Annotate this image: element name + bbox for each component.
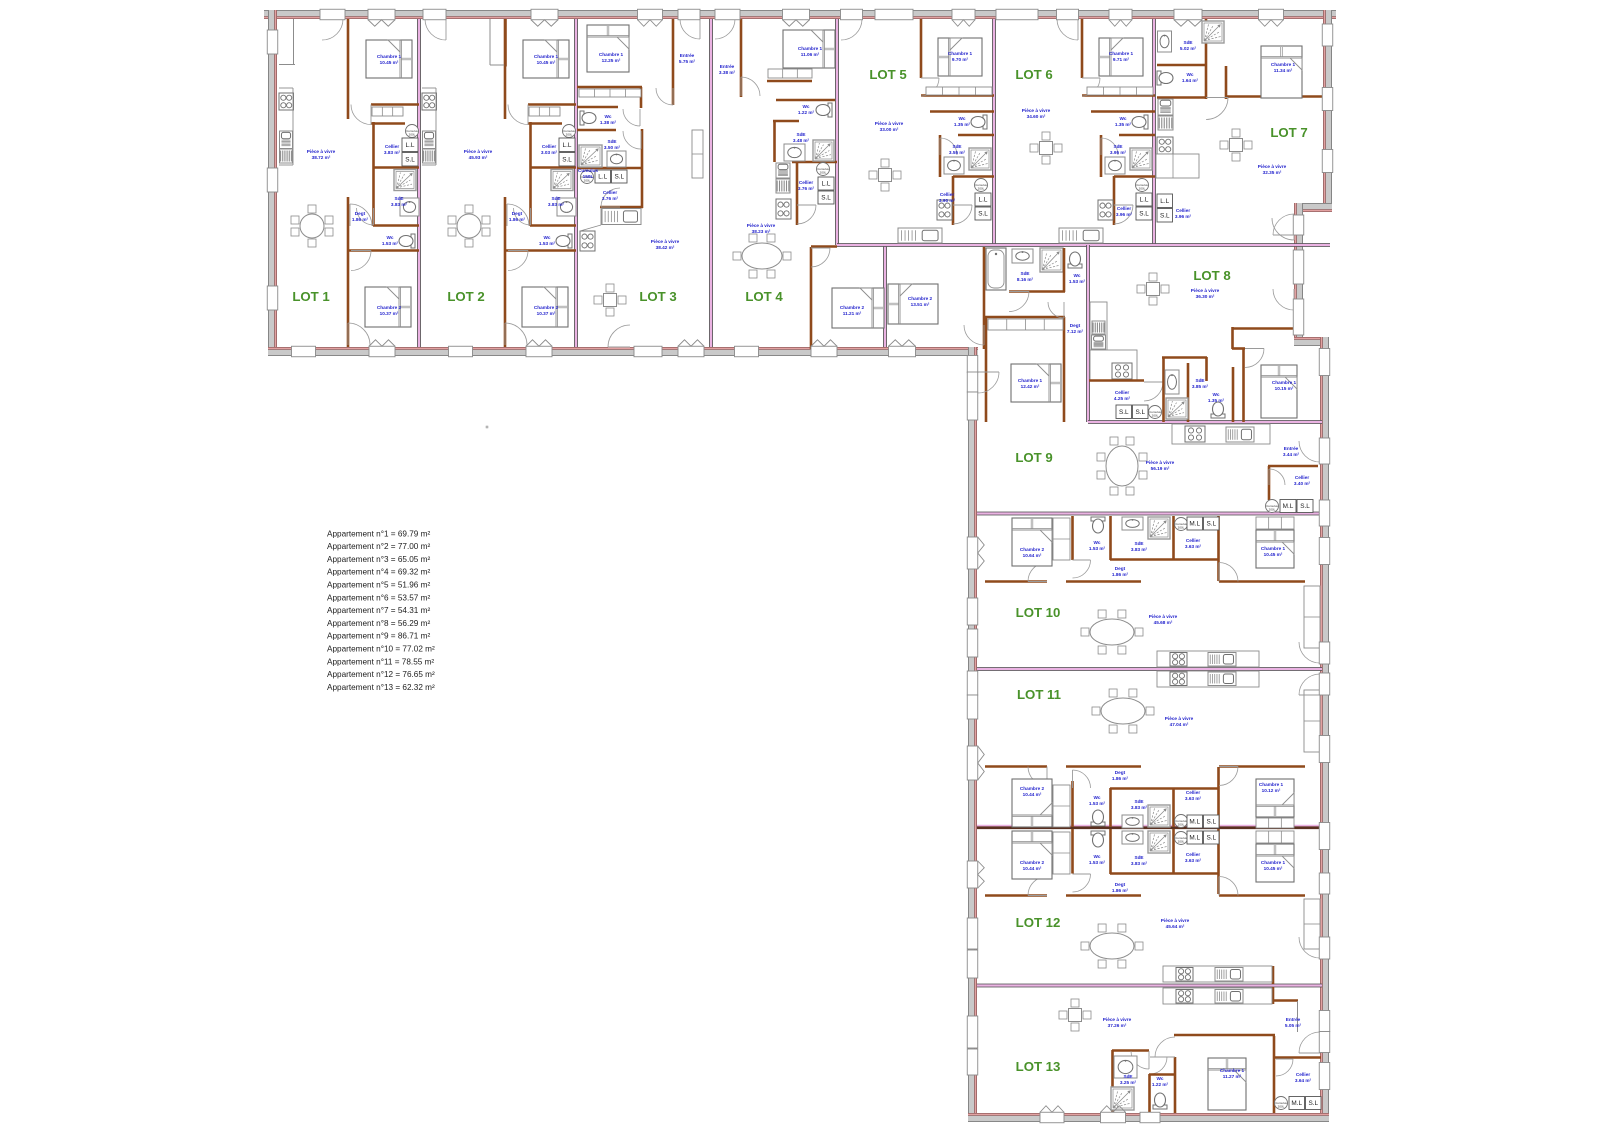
svg-text:1.86 m²: 1.86 m² [509, 217, 526, 222]
svg-text:11.34 m²: 11.34 m² [1274, 68, 1293, 73]
svg-text:S.L: S.L [1119, 409, 1129, 416]
svg-text:Degt: Degt [512, 211, 523, 216]
svg-text:Cellier: Cellier [1186, 538, 1201, 543]
svg-text:Chambre 1: Chambre 1 [377, 54, 402, 59]
svg-text:Wc: Wc [1093, 795, 1100, 800]
svg-text:Pièce à vivre: Pièce à vivre [1103, 1017, 1132, 1022]
svg-text:200L: 200L [1269, 507, 1276, 511]
svg-text:S.L: S.L [1206, 521, 1216, 528]
svg-text:3.44 m²: 3.44 m² [1283, 452, 1300, 457]
svg-text:11.21 m²: 11.21 m² [843, 311, 862, 316]
svg-text:M.L: M.L [1189, 819, 1200, 826]
svg-text:SdE: SdE [1134, 541, 1143, 546]
svg-text:Chambre 2: Chambre 2 [1020, 547, 1045, 552]
svg-text:Appartement n°10 = 77.02 m²: Appartement n°10 = 77.02 m² [327, 645, 435, 654]
svg-text:Cellier: Cellier [1176, 208, 1191, 213]
svg-text:3.50 m²: 3.50 m² [604, 145, 621, 150]
svg-text:1.35 m²: 1.35 m² [1208, 398, 1225, 403]
svg-text:Appartement n°8 = 56.29 m²: Appartement n°8 = 56.29 m² [327, 619, 430, 628]
svg-text:Wc: Wc [1212, 392, 1219, 397]
svg-text:S.L: S.L [614, 174, 624, 181]
svg-text:1.53 m²: 1.53 m² [1069, 279, 1086, 284]
svg-text:5.05 m²: 5.05 m² [1285, 1023, 1302, 1028]
svg-text:Appartement n°1 = 69.79 m²: Appartement n°1 = 69.79 m² [327, 529, 430, 538]
svg-text:Cellier: Cellier [1186, 790, 1201, 795]
svg-text:45.68 m²: 45.68 m² [1154, 620, 1173, 625]
svg-text:200L: 200L [820, 170, 827, 174]
svg-text:Appartement n°5 = 51.96 m²: Appartement n°5 = 51.96 m² [327, 581, 430, 590]
svg-text:3.83 m²: 3.83 m² [1131, 805, 1148, 810]
svg-text:Pièce à vivre: Pièce à vivre [1258, 164, 1287, 169]
svg-text:200L: 200L [584, 178, 591, 182]
svg-text:200L: 200L [1278, 1104, 1285, 1108]
svg-text:Chambre 1: Chambre 1 [1272, 380, 1297, 385]
svg-text:Degt: Degt [1115, 770, 1126, 775]
svg-text:Chambre 1: Chambre 1 [1018, 378, 1043, 383]
svg-text:L.L: L.L [822, 181, 831, 188]
svg-text:Chambre 1: Chambre 1 [1109, 51, 1134, 56]
svg-text:Wc: Wc [543, 235, 550, 240]
svg-text:9.70 m²: 9.70 m² [952, 57, 969, 62]
svg-text:200L: 200L [1178, 525, 1185, 529]
svg-text:5.02 m²: 5.02 m² [1180, 46, 1197, 51]
svg-text:34.60 m²: 34.60 m² [1027, 114, 1046, 119]
svg-text:Degt: Degt [1070, 323, 1081, 328]
svg-text:1.38 m²: 1.38 m² [600, 120, 617, 125]
svg-text:SdE: SdE [1195, 378, 1204, 383]
svg-text:150L: 150L [583, 174, 594, 179]
svg-text:38.42 m²: 38.42 m² [656, 245, 675, 250]
svg-text:S.L: S.L [978, 211, 988, 218]
svg-text:1.86 m²: 1.86 m² [352, 217, 369, 222]
svg-text:Wc: Wc [1156, 1076, 1163, 1081]
svg-text:Wc: Wc [1093, 854, 1100, 859]
svg-text:3.90 m²: 3.90 m² [939, 198, 956, 203]
svg-text:Cellier: Cellier [799, 180, 814, 185]
svg-text:200L: 200L [1152, 413, 1159, 417]
svg-text:Cellier: Cellier [1117, 206, 1132, 211]
svg-text:Appartement n°9 = 86.71 m²: Appartement n°9 = 86.71 m² [327, 632, 430, 641]
svg-text:3.25 m²: 3.25 m² [1120, 1080, 1137, 1085]
svg-text:Pièce à vivre: Pièce à vivre [1161, 918, 1190, 923]
svg-text:S.L: S.L [1206, 819, 1216, 826]
svg-text:SdE: SdE [1134, 855, 1143, 860]
svg-text:Wc: Wc [802, 104, 809, 109]
svg-text:Chambre 1: Chambre 1 [1271, 62, 1296, 67]
svg-text:Pièce à vivre: Pièce à vivre [1022, 108, 1051, 113]
svg-text:Chambre 1: Chambre 1 [798, 46, 823, 51]
svg-text:1.53 m²: 1.53 m² [382, 241, 399, 246]
svg-text:1.64 m²: 1.64 m² [1182, 78, 1199, 83]
svg-text:Degt: Degt [355, 211, 366, 216]
svg-text:SdE: SdE [952, 144, 961, 149]
svg-text:SdE: SdE [1020, 271, 1029, 276]
svg-text:Chambre 2: Chambre 2 [1020, 786, 1045, 791]
svg-text:Wc: Wc [604, 114, 611, 119]
svg-text:3.63 m²: 3.63 m² [1185, 544, 1202, 549]
svg-text:12.25 m²: 12.25 m² [602, 58, 621, 63]
svg-text:Chambre 1: Chambre 1 [1261, 546, 1286, 551]
svg-text:Entrée: Entrée [1286, 1017, 1301, 1022]
svg-text:Appartement n°4 = 69.32 m²: Appartement n°4 = 69.32 m² [327, 568, 430, 577]
svg-text:3.83 m²: 3.83 m² [1131, 861, 1148, 866]
svg-text:3.76 m²: 3.76 m² [602, 196, 619, 201]
svg-text:33.00 m²: 33.00 m² [880, 127, 899, 132]
svg-text:10.12 m²: 10.12 m² [1262, 788, 1281, 793]
svg-text:LOT 9: LOT 9 [1015, 450, 1052, 465]
svg-text:M.L: M.L [1291, 1100, 1302, 1107]
svg-text:Pièce à vivre: Pièce à vivre [307, 149, 336, 154]
svg-text:Pièce à vivre: Pièce à vivre [464, 149, 493, 154]
svg-text:Degt: Degt [1115, 566, 1126, 571]
svg-text:S.L: S.L [1160, 212, 1170, 219]
svg-text:200L: 200L [1178, 839, 1185, 843]
svg-text:Appartement n°7 = 54.31 m²: Appartement n°7 = 54.31 m² [327, 606, 430, 615]
svg-text:Chambre 1: Chambre 1 [1259, 782, 1284, 787]
svg-text:Chambre 2: Chambre 2 [377, 305, 402, 310]
svg-text:Chambre 2: Chambre 2 [908, 296, 933, 301]
svg-text:LOT 7: LOT 7 [1270, 125, 1307, 140]
svg-text:LOT 3: LOT 3 [639, 289, 676, 304]
svg-text:37.26 m²: 37.26 m² [1108, 1023, 1127, 1028]
svg-text:M.L: M.L [1189, 835, 1200, 842]
svg-text:3.64 m²: 3.64 m² [1295, 1078, 1312, 1083]
svg-text:8.16 m²: 8.16 m² [1017, 277, 1034, 282]
svg-text:3.96 m²: 3.96 m² [1116, 212, 1133, 217]
svg-text:3.76 m²: 3.76 m² [798, 186, 815, 191]
svg-text:Pièce à vivre: Pièce à vivre [651, 239, 680, 244]
svg-text:Pièce à vivre: Pièce à vivre [1146, 460, 1175, 465]
svg-text:L.L: L.L [979, 197, 988, 204]
svg-text:Pièce à vivre: Pièce à vivre [1191, 288, 1220, 293]
svg-text:3.38 m²: 3.38 m² [719, 70, 736, 75]
svg-text:LOT 11: LOT 11 [1017, 687, 1061, 702]
svg-text:1.86 m²: 1.86 m² [1112, 888, 1129, 893]
svg-text:1.53 m²: 1.53 m² [1089, 860, 1106, 865]
svg-text:3.96 m²: 3.96 m² [1175, 214, 1192, 219]
svg-text:3.63 m²: 3.63 m² [1185, 796, 1202, 801]
svg-text:3.83 m²: 3.83 m² [384, 150, 401, 155]
svg-text:1.22 m²: 1.22 m² [1152, 1082, 1169, 1087]
svg-text:Cellier: Cellier [603, 190, 618, 195]
svg-text:S.L: S.L [1300, 503, 1310, 510]
svg-text:SdE: SdE [607, 139, 616, 144]
svg-text:10.44 m²: 10.44 m² [1023, 866, 1042, 871]
svg-text:3.83 m²: 3.83 m² [548, 202, 565, 207]
svg-text:45.64 m²: 45.64 m² [1166, 924, 1185, 929]
svg-text:Appartement n°3 = 65.05 m²: Appartement n°3 = 65.05 m² [327, 555, 430, 564]
svg-text:L.L: L.L [1160, 198, 1169, 205]
svg-text:Chambre 1: Chambre 1 [599, 52, 624, 57]
svg-text:Chambre 2: Chambre 2 [1020, 860, 1045, 865]
svg-text:S.L: S.L [562, 156, 572, 163]
svg-text:1.35 m²: 1.35 m² [954, 122, 971, 127]
svg-text:S.L: S.L [405, 156, 415, 163]
svg-text:Pièce à vivre: Pièce à vivre [1149, 614, 1178, 619]
svg-text:Cellier: Cellier [940, 192, 955, 197]
svg-text:Appartement n°13 = 62.32 m²: Appartement n°13 = 62.32 m² [327, 683, 435, 692]
svg-text:L.L: L.L [406, 142, 415, 149]
svg-text:Degt: Degt [1115, 882, 1126, 887]
svg-text:200L: 200L [566, 132, 573, 136]
svg-text:Appartement n°12 = 76.65 m²: Appartement n°12 = 76.65 m² [327, 670, 435, 679]
svg-text:1.86 m²: 1.86 m² [1112, 776, 1129, 781]
svg-text:Chambre 2: Chambre 2 [534, 305, 559, 310]
svg-text:Cellier: Cellier [1295, 475, 1310, 480]
svg-text:SdE: SdE [1183, 40, 1192, 45]
svg-text:LOT 6: LOT 6 [1015, 67, 1052, 82]
svg-text:3.55 m²: 3.55 m² [949, 150, 966, 155]
svg-text:10.45 m²: 10.45 m² [1264, 866, 1283, 871]
svg-text:LOT 10: LOT 10 [1016, 605, 1061, 620]
svg-text:LOT 2: LOT 2 [447, 289, 484, 304]
svg-text:Wc: Wc [386, 235, 393, 240]
svg-text:SdE: SdE [796, 132, 805, 137]
svg-text:Entrée: Entrée [1284, 446, 1299, 451]
svg-text:200L: 200L [409, 132, 416, 136]
svg-text:Pièce à vivre: Pièce à vivre [1165, 716, 1194, 721]
svg-text:13.51 m²: 13.51 m² [911, 302, 930, 307]
svg-text:Wc: Wc [1119, 116, 1126, 121]
svg-text:LOT 8: LOT 8 [1193, 268, 1230, 283]
svg-text:L.L: L.L [598, 174, 607, 181]
svg-text:Appartement n°6 = 53.57 m²: Appartement n°6 = 53.57 m² [327, 593, 430, 602]
svg-text:3.83 m²: 3.83 m² [391, 202, 408, 207]
svg-text:3.48 m²: 3.48 m² [793, 138, 810, 143]
svg-text:S.L: S.L [1135, 409, 1145, 416]
svg-text:Cellier: Cellier [542, 144, 557, 149]
svg-text:SdE: SdE [1113, 144, 1122, 149]
svg-text:10.45 m²: 10.45 m² [380, 60, 399, 65]
svg-text:200L: 200L [978, 186, 985, 190]
svg-text:S.L: S.L [1206, 835, 1216, 842]
svg-text:38.23 m²: 38.23 m² [752, 229, 771, 234]
svg-text:Pièce à vivre: Pièce à vivre [747, 223, 776, 228]
svg-text:10.64 m²: 10.64 m² [1023, 553, 1042, 558]
svg-text:1.53 m²: 1.53 m² [539, 241, 556, 246]
svg-text:Chambre 1: Chambre 1 [1220, 1068, 1245, 1073]
svg-text:11.27 m²: 11.27 m² [1223, 1074, 1242, 1079]
svg-text:SdE: SdE [1134, 799, 1143, 804]
svg-text:LOT 4: LOT 4 [745, 289, 783, 304]
svg-text:Chambre 1: Chambre 1 [534, 54, 559, 59]
svg-text:S.L: S.L [1308, 1100, 1318, 1107]
svg-text:10.37 m²: 10.37 m² [380, 311, 399, 316]
svg-text:Cellier: Cellier [1186, 852, 1201, 857]
svg-text:SdE: SdE [551, 196, 560, 201]
svg-text:47.04 m²: 47.04 m² [1170, 722, 1189, 727]
svg-text:Cumulus: Cumulus [578, 168, 598, 173]
svg-text:Wc: Wc [1073, 273, 1080, 278]
svg-text:36.30 m²: 36.30 m² [1196, 294, 1215, 299]
svg-text:Wc: Wc [1093, 540, 1100, 545]
svg-text:10.37 m²: 10.37 m² [537, 311, 556, 316]
svg-text:3.63 m²: 3.63 m² [1185, 858, 1202, 863]
svg-text:1.86 m²: 1.86 m² [1112, 572, 1129, 577]
svg-text:3.03 m²: 3.03 m² [541, 150, 558, 155]
svg-text:56.19 m²: 56.19 m² [1151, 466, 1170, 471]
svg-text:S.L: S.L [821, 195, 831, 202]
svg-text:Pièce à vivre: Pièce à vivre [875, 121, 904, 126]
svg-text:SdE: SdE [394, 196, 403, 201]
svg-text:1.53 m²: 1.53 m² [1089, 546, 1106, 551]
svg-text:Chambre 1: Chambre 1 [948, 51, 973, 56]
svg-text:Wc: Wc [958, 116, 965, 121]
svg-text:10.45 m²: 10.45 m² [1264, 552, 1283, 557]
svg-text:10.44 m²: 10.44 m² [1023, 792, 1042, 797]
svg-text:9.71 m²: 9.71 m² [1113, 57, 1130, 62]
svg-text:Chambre 1: Chambre 1 [1261, 860, 1286, 865]
svg-text:Cellier: Cellier [1115, 390, 1130, 395]
svg-text:5.75 m²: 5.75 m² [679, 59, 696, 64]
svg-text:Entrée: Entrée [720, 64, 735, 69]
svg-text:1.53 m²: 1.53 m² [1089, 801, 1106, 806]
svg-text:1.22 m²: 1.22 m² [798, 110, 815, 115]
svg-text:3.85 m²: 3.85 m² [1192, 384, 1209, 389]
svg-text:3.83 m²: 3.83 m² [1131, 547, 1148, 552]
svg-text:Cellier: Cellier [1296, 1072, 1311, 1077]
svg-text:12.42 m²: 12.42 m² [1021, 384, 1040, 389]
svg-text:200L: 200L [1139, 186, 1146, 190]
svg-text:LOT 1: LOT 1 [292, 289, 329, 304]
svg-text:10.15 m²: 10.15 m² [1275, 386, 1294, 391]
svg-text:LOT 13: LOT 13 [1016, 1059, 1061, 1074]
svg-text:Chambre 2: Chambre 2 [840, 305, 865, 310]
svg-text:7.12 m²: 7.12 m² [1067, 329, 1084, 334]
svg-text:S.L: S.L [1139, 211, 1149, 218]
svg-text:200L: 200L [1178, 822, 1185, 826]
svg-text:11.06 m²: 11.06 m² [801, 52, 820, 57]
svg-text:3.40 m²: 3.40 m² [1294, 481, 1311, 486]
svg-text:32.35 m²: 32.35 m² [1263, 170, 1282, 175]
svg-text:L.L: L.L [563, 142, 572, 149]
svg-text:LOT 12: LOT 12 [1016, 915, 1061, 930]
svg-text:SdE: SdE [1123, 1074, 1132, 1079]
svg-text:4.25 m²: 4.25 m² [1114, 396, 1131, 401]
svg-text:Appartement n°2 = 77.00 m²: Appartement n°2 = 77.00 m² [327, 542, 430, 551]
svg-text:38.72 m²: 38.72 m² [312, 155, 331, 160]
svg-text:M.L: M.L [1189, 521, 1200, 528]
svg-text:L.L: L.L [1140, 197, 1149, 204]
svg-text:3.95 m²: 3.95 m² [1110, 150, 1127, 155]
svg-text:LOT 5: LOT 5 [869, 67, 906, 82]
svg-text:10.45 m²: 10.45 m² [537, 60, 556, 65]
svg-text:Entrée: Entrée [680, 53, 695, 58]
svg-text:Wc: Wc [1186, 72, 1193, 77]
svg-text:M.L: M.L [1283, 503, 1294, 510]
svg-text:45.93 m²: 45.93 m² [469, 155, 488, 160]
svg-text:1.35 m²: 1.35 m² [1115, 122, 1132, 127]
svg-text:Cellier: Cellier [385, 144, 400, 149]
svg-text:Appartement n°11 = 78.55 m²: Appartement n°11 = 78.55 m² [327, 657, 434, 666]
